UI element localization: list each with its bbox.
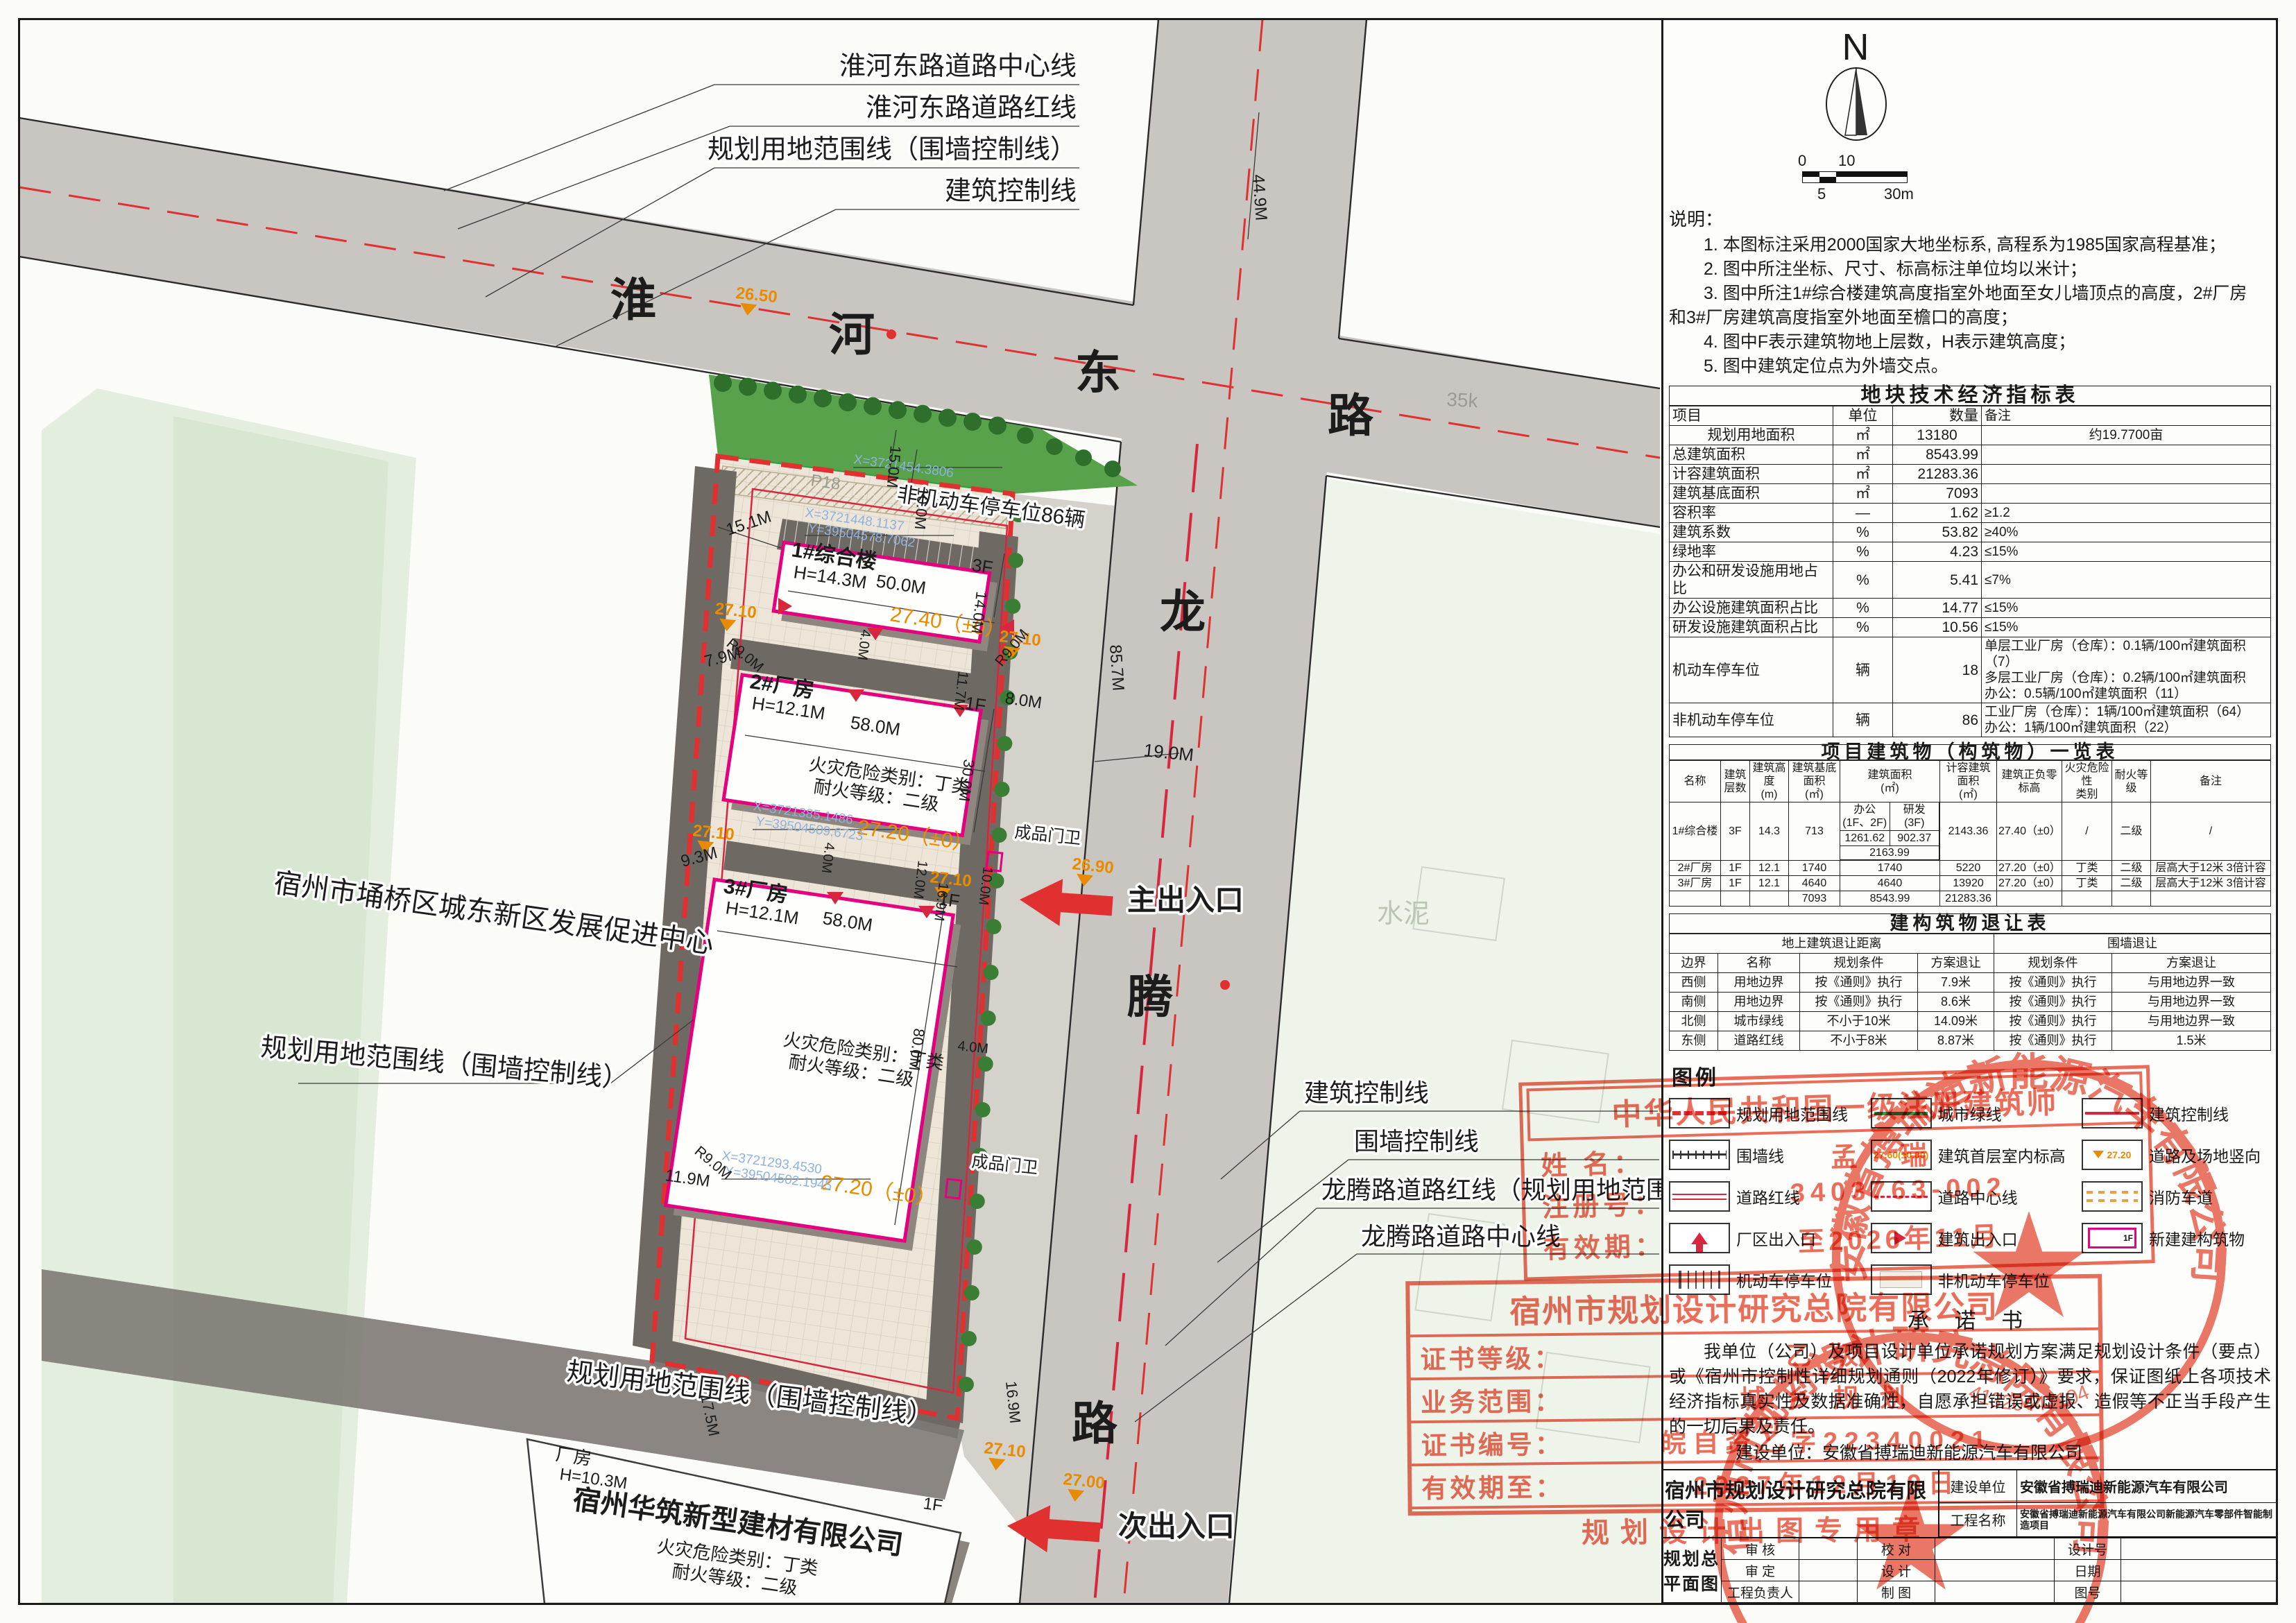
- table-cell: 2143.36: [1940, 802, 1997, 861]
- table-cell: 丁类: [2062, 861, 2112, 876]
- table-cell: 按《通则》执行: [1800, 993, 1918, 1012]
- table-row: 北侧城市绿线不小于10米14.09米按《通则》执行与用地边界一致: [1670, 1012, 2271, 1031]
- table-cell: 用地边界: [1718, 993, 1800, 1012]
- table-cell: 南侧: [1670, 993, 1718, 1012]
- tree-icon: [967, 1239, 982, 1255]
- table-cell: [1721, 891, 1750, 907]
- table-cell: %: [1833, 542, 1893, 562]
- column-header: 项目: [1670, 406, 1833, 426]
- sub-header: 办公 (1F、2F): [1840, 802, 1890, 831]
- buildings-table-title: 项目建筑物（构筑物）一览表: [1670, 745, 2271, 761]
- plan-label: 腾: [1127, 971, 1174, 1022]
- table-row: 建筑系数%53.82≥40%: [1670, 523, 2271, 542]
- centerline-node: [1220, 980, 1230, 990]
- table-cell: 4640: [1789, 876, 1840, 891]
- column-group: 地上建筑退让距离: [1670, 934, 1994, 954]
- note-line: 3. 图中所注1#综合楼建筑高度指室外地面至女儿墙顶点的高度，2#厂房: [1669, 282, 2271, 306]
- sub-header: 研发 (3F): [1890, 802, 1940, 831]
- plan-label: 路: [1328, 390, 1374, 441]
- north-arrow-icon: [1824, 66, 1888, 142]
- stamp-label: 姓 名：: [1541, 1142, 1645, 1183]
- tree-icon: [963, 413, 982, 431]
- tree-icon: [1046, 438, 1063, 455]
- table-cell: 容积率: [1670, 504, 1833, 523]
- table-cell: 27.40（±0）: [1997, 802, 2062, 861]
- column-header: 建筑正负零 标高: [1997, 760, 2062, 802]
- table-cell: /: [2062, 802, 2112, 861]
- sheet-no-value: [2121, 1581, 2277, 1603]
- buildings-table: 项目建筑物（构筑物）一览表 名称 建筑 层数 建筑高度 (m) 建筑基底面积 (…: [1669, 744, 2271, 907]
- table-cell: 8.87米: [1918, 1031, 1994, 1051]
- table-cell: 1740: [1789, 861, 1840, 876]
- table-cell: 14.77: [1893, 599, 1982, 618]
- plan-label: 次出入口: [1118, 1510, 1235, 1543]
- table-cell: 按《通则》执行: [1994, 1012, 2112, 1031]
- table-cell: ≤15%: [1982, 618, 2271, 637]
- table-cell: 7093: [1893, 484, 1982, 504]
- tree-icon: [714, 374, 732, 392]
- plan-label: 围墙控制线: [1354, 1127, 1479, 1156]
- setback-table-title: 建构筑物退让表: [1670, 914, 2271, 934]
- table-cell: [1982, 465, 2271, 484]
- column-group: 围墙退让: [1994, 934, 2271, 954]
- econ-table: 地块技术经济指标表 项目 单位 数量 备注 规划用地面积㎡13180约19.77…: [1669, 386, 2271, 737]
- table-row: 东侧道路红线不小于8米8.87米按《通则》执行1.5米: [1670, 1031, 2271, 1051]
- table-cell: 二级: [2112, 861, 2151, 876]
- plan-label: 龙: [1160, 586, 1206, 637]
- tree-icon: [739, 378, 757, 396]
- plan-label: 1F: [922, 1494, 944, 1515]
- table-cell: ≤15%: [1982, 599, 2271, 618]
- tree-icon: [991, 827, 1006, 843]
- scale-tick: 0: [1798, 152, 1806, 170]
- table-cell: 13920: [1940, 876, 1997, 891]
- table-cell: 18: [1893, 637, 1982, 703]
- table-cell: [2062, 891, 2112, 907]
- table-cell: ≤7%: [1982, 562, 2271, 599]
- note-line: 4. 图中F表示建筑物地上层数，H表示建筑高度；: [1669, 330, 2271, 354]
- table-row: 西侧用地边界按《通则》执行7.9米按《通则》执行与用地边界一致: [1670, 973, 2271, 993]
- table-row: 非机动车停车位辆86工业厂房（仓库）：1辆/100㎡建筑面积（64）办公：1辆/…: [1670, 703, 2271, 737]
- table-cell: 1740: [1840, 861, 1940, 876]
- tree-icon: [1075, 449, 1092, 466]
- table-cell: 7.9米: [1918, 973, 1994, 993]
- table-cell: 东侧: [1670, 1031, 1718, 1051]
- table-cell: 86: [1893, 703, 1982, 737]
- table-cell: 北侧: [1670, 1012, 1718, 1031]
- table-cell: 道路红线: [1718, 1031, 1800, 1051]
- tree-icon: [764, 381, 782, 400]
- drawing-sheet: 26.5027.1027.1026.9027.1027.1027.1027.00…: [0, 0, 2296, 1623]
- tree-icon: [964, 1285, 979, 1300]
- table-cell: [1750, 891, 1789, 907]
- table-cell: [1670, 891, 1721, 907]
- compass-block: N 0 10 5 30m: [1663, 20, 2277, 206]
- table-row: 研发设施建筑面积占比%10.56≤15%: [1670, 618, 2271, 637]
- stamp-label: 注册号：: [1541, 1183, 1664, 1224]
- plan-label: 3F: [970, 554, 994, 578]
- table-cell: 8.6米: [1918, 993, 1994, 1012]
- tree-icon: [970, 1194, 985, 1209]
- table-cell: 7093: [1789, 891, 1840, 907]
- plan-label: 44.9M: [1249, 174, 1271, 221]
- table-cell: [1982, 445, 2271, 465]
- table-cell: 按《通则》执行: [1994, 973, 2112, 993]
- table-cell: 辆: [1833, 637, 1893, 703]
- notes-title: 说明：: [1669, 207, 2271, 232]
- table-cell: 按《通则》执行: [1994, 993, 2112, 1012]
- table-cell: 2163.99: [1840, 845, 1939, 860]
- column-header: 建筑高度 (m): [1750, 760, 1789, 802]
- table-cell: 1.5米: [2112, 1031, 2271, 1051]
- table-row: 建筑基底面积㎡7093: [1670, 484, 2271, 504]
- column-header: 规划条件: [1994, 954, 2112, 973]
- plan-label: 淮河东路道路红线: [866, 94, 1077, 123]
- table-cell: 工业厂房（仓库）：1辆/100㎡建筑面积（64）办公：1辆/100㎡建筑面积（2…: [1982, 703, 2271, 737]
- table-cell: 辆: [1833, 703, 1893, 737]
- table-cell: ≥1.2: [1982, 504, 2271, 523]
- table-cell: ㎡: [1833, 465, 1893, 484]
- table-cell: 用地边界: [1718, 973, 1800, 993]
- column-header: 方案退让: [1918, 954, 1994, 973]
- table-cell: ㎡: [1833, 445, 1893, 465]
- table-cell: 层高大于12米 3倍计容: [2151, 876, 2271, 891]
- table-cell: 1F: [1721, 861, 1750, 876]
- plan-label: 15.0M: [884, 445, 905, 489]
- tree-icon: [839, 393, 857, 411]
- table-cell: 1#综合楼: [1670, 802, 1721, 861]
- table-cell: 713: [1789, 802, 1840, 861]
- table-cell: 不小于8米: [1800, 1031, 1918, 1051]
- table-cell: —: [1833, 504, 1893, 523]
- table-row: 办公和研发设施用地占比%5.41≤7%: [1670, 562, 2271, 599]
- star-icon: ★: [1846, 1457, 1976, 1620]
- note-line: 1. 本图标注采用2000国家大地坐标系, 高程系为1985国家高程基准；: [1669, 233, 2271, 257]
- table-row: 计容建筑面积㎡21283.36: [1670, 465, 2271, 484]
- plan-label: 10.0M: [911, 487, 932, 531]
- plan-label: 建筑控制线: [945, 177, 1077, 206]
- plan-label: 85.7M: [1106, 644, 1128, 692]
- tree-icon: [988, 417, 1006, 435]
- table-cell: 53.82: [1893, 523, 1982, 542]
- plan-label: 4.0M: [957, 1038, 989, 1057]
- tree-icon: [961, 1331, 977, 1346]
- column-header: 建筑基底面积 (㎡): [1789, 760, 1840, 802]
- table-cell: ㎡: [1833, 426, 1893, 445]
- table-cell: 绿地率: [1670, 542, 1833, 562]
- table-cell: 13180: [1893, 426, 1982, 445]
- table-cell: [2151, 891, 2271, 907]
- table-cell: [1982, 484, 2271, 504]
- table-cell: 与用地边界一致: [2112, 1012, 2271, 1031]
- column-header: 规划条件: [1800, 954, 1918, 973]
- plan-label: 河: [829, 309, 875, 360]
- tree-icon: [889, 401, 907, 419]
- plan-label: 主出入口: [1127, 884, 1244, 916]
- institute-round-stamp: 宿州市规划设计研究总院有限公司 ★: [1703, 1321, 2119, 1623]
- table-cell: 总建筑面积: [1670, 445, 1833, 465]
- stamp-label: 有效期：: [1543, 1224, 1665, 1266]
- table-cell: 研发设施建筑面积占比: [1670, 618, 1833, 637]
- column-header: 建筑 层数: [1721, 760, 1750, 802]
- plan-label: 规划用地范围线（围墙控制线）: [708, 135, 1077, 164]
- table-row: 绿地率%4.23≤15%: [1670, 542, 2271, 562]
- column-header: 名称: [1670, 760, 1721, 802]
- table-cell: 机动车停车位: [1670, 637, 1833, 703]
- plan-label: 路: [1072, 1398, 1118, 1449]
- tree-icon: [814, 389, 832, 407]
- plan-label: 水泥: [1377, 900, 1430, 929]
- table-row: 南侧用地边界按《通则》执行8.6米按《通则》执行与用地边界一致: [1670, 993, 2271, 1012]
- tree-icon: [994, 782, 1009, 797]
- tree-icon: [1008, 553, 1023, 568]
- table-row: 总建筑面积㎡8543.99: [1670, 445, 2271, 465]
- tree-icon: [1005, 599, 1020, 614]
- table-row: 机动车停车位辆18单层工业厂房（仓库）：0.1辆/100㎡建筑面积（7）多层工业…: [1670, 637, 2271, 703]
- column-header: 备注: [2151, 760, 2271, 802]
- table-cell: 3#厂房: [1670, 876, 1721, 891]
- table-cell: 建筑基底面积: [1670, 484, 1833, 504]
- setback-table: 建构筑物退让表 地上建筑退让距离 围墙退让 边界 名称 规划条件 方案退让 规划…: [1669, 913, 2271, 1051]
- table-cell: %: [1833, 618, 1893, 637]
- column-header: 数量: [1893, 406, 1982, 426]
- plan-label: 淮河东路道路中心线: [839, 52, 1077, 81]
- plan-label: 建筑控制线: [1304, 1079, 1429, 1107]
- table-cell: 3F: [1721, 802, 1750, 861]
- table-cell: 27.20（±0）: [1997, 876, 2062, 891]
- econ-table-title: 地块技术经济指标表: [1670, 386, 2271, 406]
- scale-tick: 30m: [1884, 185, 1914, 203]
- table-cell: 按《通则》执行: [1800, 973, 1918, 993]
- column-header: 边界: [1670, 954, 1718, 973]
- plan-label: 35k: [1446, 388, 1480, 411]
- table-cell: 单层工业厂房（仓库）：0.1辆/100㎡建筑面积（7）多层工业厂房（仓库）：0.…: [1982, 637, 2271, 703]
- table-cell: 902.37: [1890, 830, 1940, 846]
- table-cell: 4.23: [1893, 542, 1982, 562]
- table-cell: 1F: [1721, 876, 1750, 891]
- tree-icon: [975, 1102, 991, 1117]
- table-cell: %: [1833, 562, 1893, 599]
- table-cell: 西侧: [1670, 973, 1718, 993]
- table-cell: 2#厂房: [1670, 861, 1721, 876]
- column-header: 备注: [1982, 406, 2271, 426]
- column-header: 火灾危险性 类别: [2062, 760, 2112, 802]
- table-cell: ≥40%: [1982, 523, 2271, 542]
- table-cell: 层高大于12米 3倍计容: [2151, 861, 2271, 876]
- table-cell: 12.1: [1750, 861, 1789, 876]
- note-line: 2. 图中所注坐标、尺寸、标高标注单位均以米计；: [1669, 257, 2271, 282]
- table-cell: 8543.99: [1893, 445, 1982, 465]
- table-cell: 计容建筑面积: [1670, 465, 1833, 484]
- table-cell: /: [2151, 802, 2271, 861]
- table-row: 办公设施建筑面积占比%14.77≤15%: [1670, 599, 2271, 618]
- table-cell: 4640: [1840, 876, 1940, 891]
- table-cell: 规划用地面积: [1670, 426, 1833, 445]
- column-header: 耐火等级: [2112, 760, 2151, 802]
- table-cell: 与用地边界一致: [2112, 973, 2271, 993]
- tree-icon: [959, 1377, 974, 1392]
- tree-icon: [789, 386, 807, 404]
- table-cell: %: [1833, 523, 1893, 542]
- table-cell: 城市绿线: [1718, 1012, 1800, 1031]
- table-cell: 办公和研发设施用地占比: [1670, 562, 1833, 599]
- table-cell: 21283.36: [1893, 465, 1982, 484]
- table-cell: 二级: [2112, 876, 2151, 891]
- table-cell: 5.41: [1893, 562, 1982, 599]
- notes: 说明： 1. 本图标注采用2000国家大地坐标系, 高程系为1985国家高程基准…: [1663, 207, 2277, 379]
- table-cell: 按《通则》执行: [1994, 1031, 2112, 1051]
- table-cell: 21283.36: [1940, 891, 1997, 907]
- table-cell: 10.56: [1893, 618, 1982, 637]
- table-cell: 8543.99: [1840, 891, 1940, 907]
- table-cell: 1261.62: [1840, 830, 1890, 846]
- table-cell: 二级: [2112, 802, 2151, 861]
- column-header: 单位: [1833, 406, 1893, 426]
- scale-tick: 5: [1817, 185, 1826, 203]
- table-cell: 14.09米: [1918, 1012, 1994, 1031]
- design-no-value: [2121, 1538, 2277, 1560]
- north-label: N: [1824, 26, 1887, 69]
- column-header: 名称: [1718, 954, 1800, 973]
- tree-icon: [1104, 461, 1121, 477]
- table-cell: 非机动车停车位: [1670, 703, 1833, 737]
- scale-tick: 10: [1838, 152, 1855, 170]
- plan-label: 东: [1075, 347, 1121, 398]
- table-cell: 27.20（±0）: [1997, 861, 2062, 876]
- table-cell: 不小于10米: [1800, 1012, 1918, 1031]
- table-row: 规划用地面积㎡13180约19.7700亩: [1670, 426, 2271, 445]
- note-line: 和3#厂房建筑高度指室外地面至檐口的高度；: [1669, 306, 2271, 330]
- table-cell: %: [1833, 599, 1893, 618]
- table-row: 容积率—1.62≥1.2: [1670, 504, 2271, 523]
- tree-icon: [1017, 427, 1034, 444]
- table-cell: 14.3: [1750, 802, 1789, 861]
- tree-icon: [939, 409, 957, 427]
- tree-icon: [978, 1056, 993, 1072]
- note-line: 5. 图中建筑定位点为外墙交点。: [1669, 354, 2271, 379]
- table-cell: 12.1: [1750, 876, 1789, 891]
- tree-icon: [914, 405, 932, 423]
- tree-icon: [981, 1011, 996, 1026]
- table-cell: 办公设施建筑面积占比: [1670, 599, 1833, 618]
- centerline-node: [886, 329, 896, 339]
- tree-icon: [986, 919, 1002, 934]
- tree-icon: [997, 736, 1012, 751]
- table-cell: 办公 (1F、2F) 研发 (3F) 1261.62 902.37 2163.9…: [1840, 802, 1940, 861]
- table-cell: 5220: [1940, 861, 1997, 876]
- plan-label: 淮: [610, 274, 656, 325]
- date-value: [2121, 1560, 2277, 1581]
- scale-bar: 0 10 5 30m: [1802, 156, 1906, 195]
- tree-icon: [984, 965, 999, 980]
- table-cell: 建筑系数: [1670, 523, 1833, 542]
- table-cell: ≤15%: [1982, 542, 2271, 562]
- column-header: 方案退让: [2112, 954, 2271, 973]
- table-cell: [2112, 891, 2151, 907]
- table-cell: 约19.7700亩: [1982, 426, 2271, 445]
- table-cell: [1997, 891, 2062, 907]
- table-cell: ㎡: [1833, 484, 1893, 504]
- column-header: 计容建筑面积 (㎡): [1940, 760, 1997, 802]
- table-cell: 丁类: [2062, 876, 2112, 891]
- column-header: 建筑面积 (㎡): [1840, 760, 1940, 802]
- table-cell: 1.62: [1893, 504, 1982, 523]
- tree-icon: [864, 397, 882, 415]
- table-cell: 与用地边界一致: [2112, 993, 2271, 1012]
